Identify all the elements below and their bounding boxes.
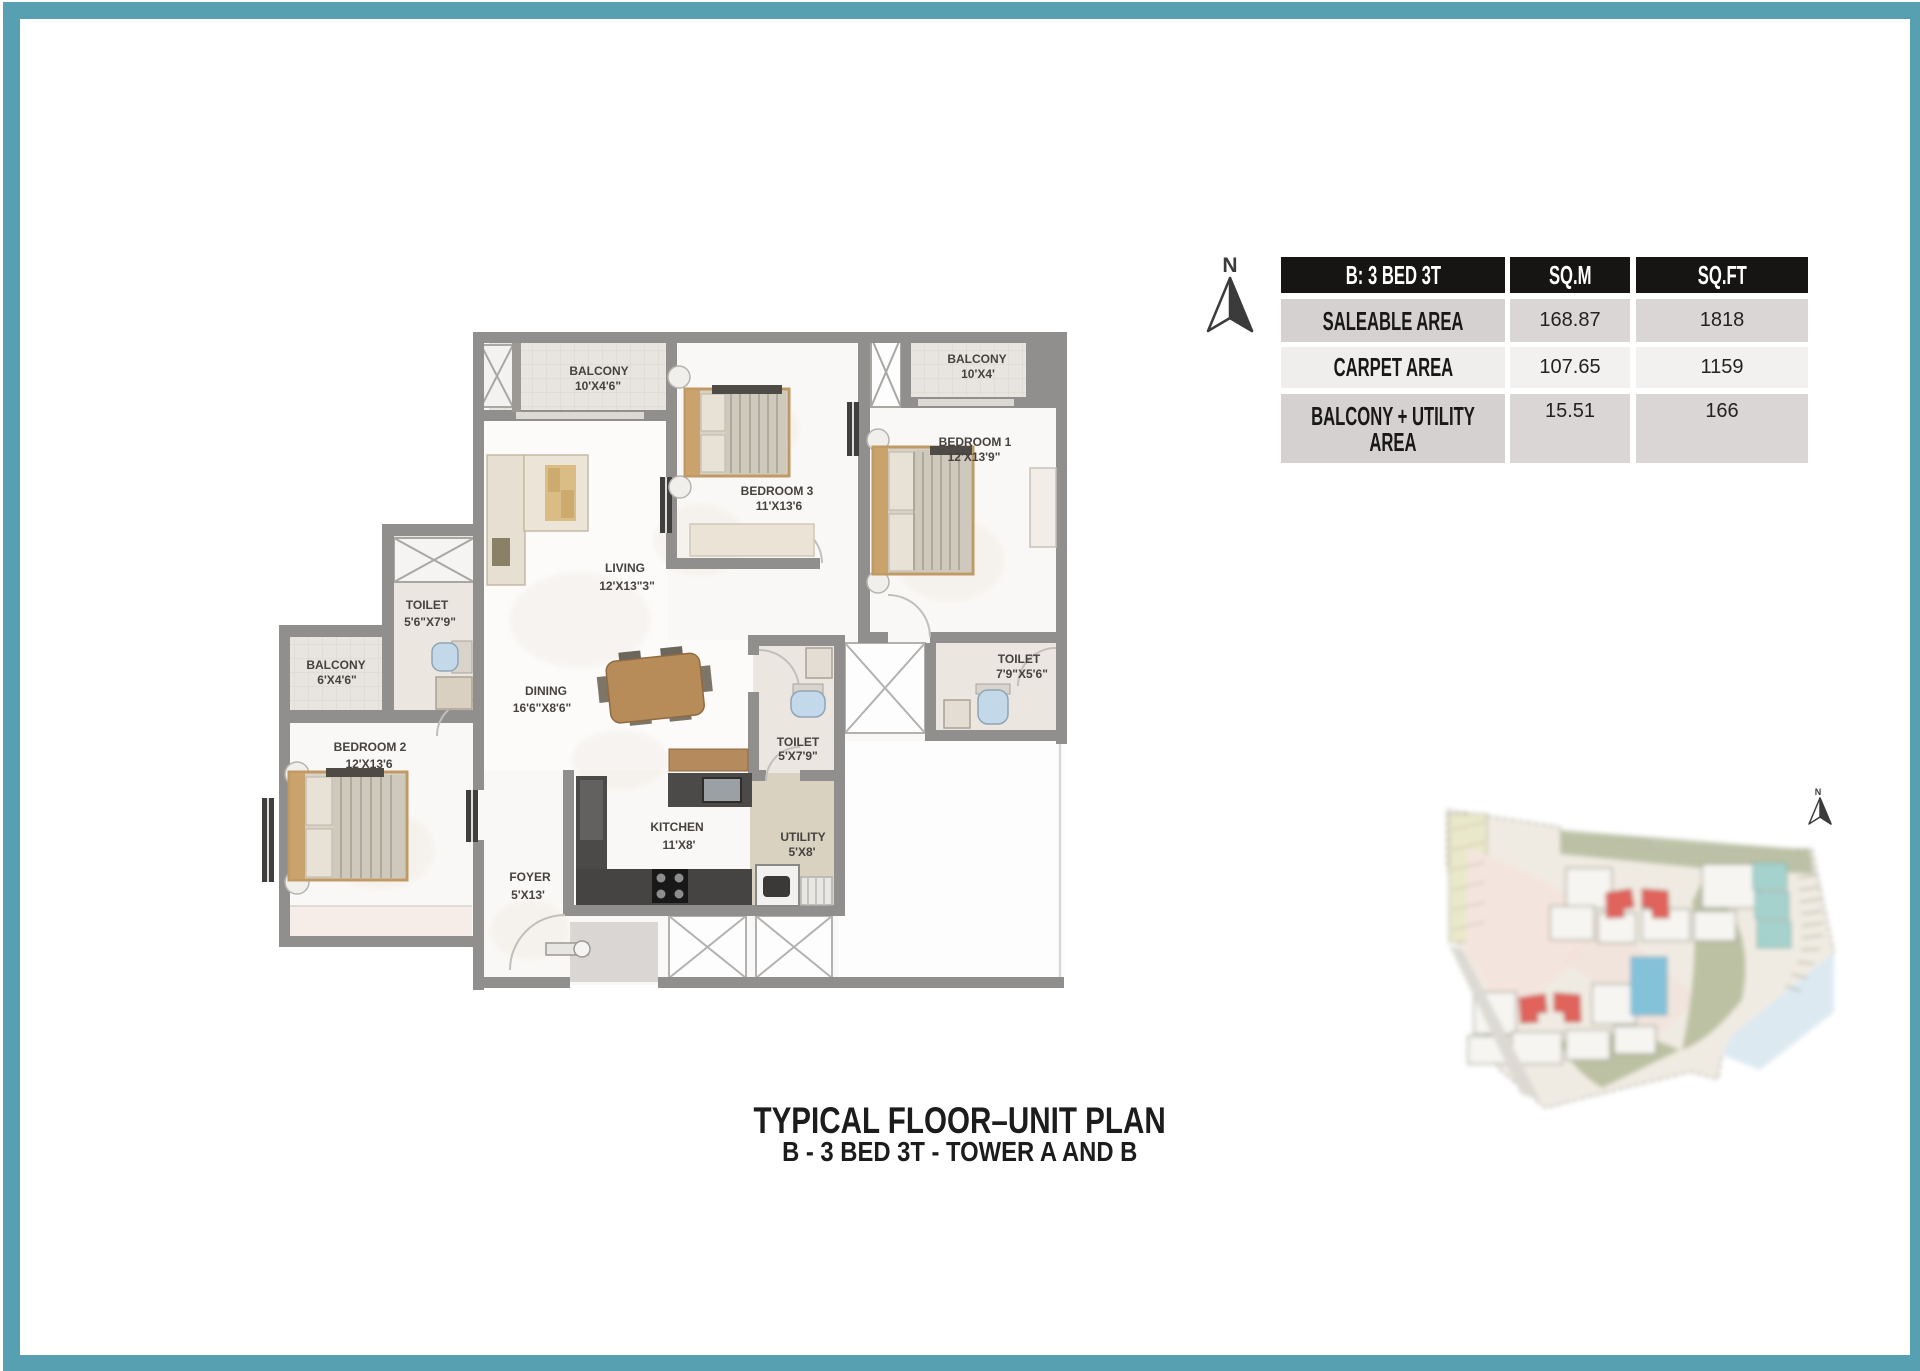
svg-text:UTILITY: UTILITY (780, 830, 825, 844)
svg-text:N: N (1222, 254, 1237, 277)
svg-text:6'X4'6": 6'X4'6" (317, 673, 356, 687)
svg-text:TOILET: TOILET (777, 735, 820, 749)
svg-text:BALCONY: BALCONY (947, 352, 1006, 366)
svg-text:BEDROOM 3: BEDROOM 3 (741, 484, 814, 498)
svg-text:BALCONY: BALCONY (569, 364, 628, 378)
svg-text:N: N (1815, 787, 1822, 797)
svg-text:10'X4': 10'X4' (961, 367, 995, 381)
svg-text:7'9"X5'6": 7'9"X5'6" (996, 667, 1048, 681)
svg-text:12'X13'6: 12'X13'6 (345, 757, 392, 771)
svg-text:5'X7'9": 5'X7'9" (778, 749, 817, 763)
svg-text:BALCONY: BALCONY (306, 658, 365, 672)
svg-text:12'X13"3": 12'X13"3" (599, 579, 655, 593)
svg-text:BEDROOM 2: BEDROOM 2 (334, 740, 407, 754)
svg-text:FOYER: FOYER (509, 870, 551, 884)
svg-text:11'X13'6: 11'X13'6 (756, 499, 803, 513)
svg-text:5'X13': 5'X13' (511, 888, 545, 902)
svg-text:BEDROOM 1: BEDROOM 1 (939, 435, 1012, 449)
svg-text:TOILET: TOILET (998, 652, 1041, 666)
svg-text:DINING: DINING (525, 684, 567, 698)
svg-text:10'X4'6": 10'X4'6" (575, 379, 621, 393)
svg-text:5'X8': 5'X8' (788, 845, 815, 859)
svg-text:KITCHEN: KITCHEN (650, 820, 703, 834)
svg-text:11'X8': 11'X8' (662, 838, 695, 852)
svg-text:12'X13'9": 12'X13'9" (948, 450, 1001, 464)
svg-text:5'6"X7'9": 5'6"X7'9" (404, 615, 456, 629)
svg-text:LIVING: LIVING (605, 561, 645, 575)
svg-text:16'6"X8'6": 16'6"X8'6" (513, 701, 571, 715)
svg-text:TOILET: TOILET (406, 598, 449, 612)
